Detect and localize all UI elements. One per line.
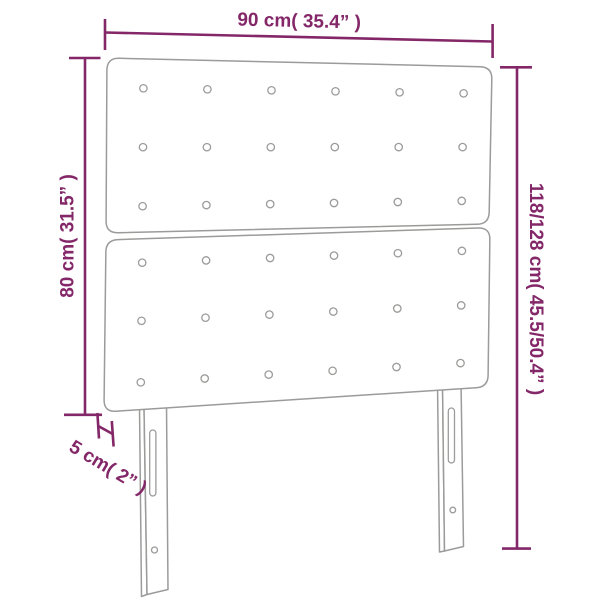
tuft-button	[267, 144, 274, 151]
tuft-button	[201, 375, 208, 382]
tuft-button	[268, 87, 275, 94]
thickness-dimension-line	[98, 426, 113, 434]
right-leg	[438, 382, 464, 553]
tuft-button	[329, 367, 336, 374]
tuft-button	[139, 144, 146, 151]
total-height-dimension: 118/128 cm( 45.5/50.4” )	[500, 67, 546, 548]
tuft-button	[457, 359, 464, 366]
left-leg-screw-hole	[152, 547, 158, 553]
tuft-button	[330, 252, 337, 259]
tuft-button	[138, 317, 145, 324]
tuft-button	[266, 254, 273, 261]
dimension-diagram: 90 cm( 35.4” ) 80 cm( 31.5” ) 118/128 cm…	[0, 0, 600, 600]
headboard-height-label: 80 cm( 31.5” )	[58, 174, 79, 298]
tuft-button	[393, 363, 400, 370]
tuft-button	[458, 247, 465, 254]
tuft-button	[267, 200, 274, 207]
tuft-button	[202, 314, 209, 321]
tuft-button	[202, 257, 209, 264]
right-leg-screw-hole	[450, 507, 456, 513]
headboard-bottom-panel	[104, 228, 490, 411]
thickness-label: 5 cm( 2” )	[65, 436, 150, 499]
headboard-height-dimension: 80 cm( 31.5” )	[58, 58, 103, 415]
tuft-button	[394, 305, 401, 312]
tuft-button	[332, 88, 339, 95]
diagram-canvas: 90 cm( 35.4” ) 80 cm( 31.5” ) 118/128 cm…	[0, 0, 600, 600]
tuft-button	[203, 201, 210, 208]
tuft-button	[265, 371, 272, 378]
tuft-button	[139, 259, 146, 266]
tuft-button	[137, 379, 144, 386]
tuft-button	[204, 86, 211, 93]
tuft-button	[266, 311, 273, 318]
total-height-label: 118/128 cm( 45.5/50.4” )	[525, 183, 546, 395]
left-leg	[140, 405, 169, 597]
tuft-button	[460, 90, 467, 97]
tuft-button	[459, 143, 466, 150]
tuft-button	[394, 250, 401, 257]
tuft-button	[330, 199, 337, 206]
width-dimension-label: 90 cm( 35.4” )	[237, 9, 361, 33]
right-leg-slot	[448, 408, 454, 463]
tuft-button	[330, 308, 337, 315]
width-dimension: 90 cm( 35.4” )	[105, 9, 493, 58]
tuft-button	[396, 89, 403, 96]
tuft-button	[458, 197, 465, 204]
headboard-top-panel	[106, 58, 492, 232]
tuft-button	[331, 143, 338, 150]
tuft-button	[139, 203, 146, 210]
tuft-button	[140, 85, 147, 92]
width-dimension-line	[105, 33, 492, 42]
thickness-dimension: 5 cm( 2” )	[65, 413, 150, 499]
tuft-button	[395, 143, 402, 150]
tuft-button	[394, 198, 401, 205]
right-leg-front-face	[443, 382, 464, 552]
left-leg-slot	[150, 430, 156, 496]
tuft-button	[458, 302, 465, 309]
tuft-button	[203, 144, 210, 151]
